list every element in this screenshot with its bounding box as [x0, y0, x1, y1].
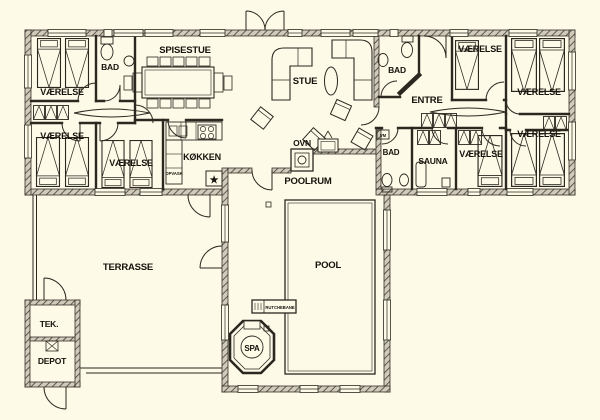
- ovn-stove-icon: [291, 149, 313, 171]
- coffee-table: [325, 67, 338, 95]
- depot-door: [44, 387, 66, 409]
- bed-icon: [37, 138, 60, 187]
- room-label-terrasse: TERRASSE: [103, 262, 153, 273]
- room-label-vaerelse-tr2: VÆRELSE: [517, 87, 561, 97]
- room-label-vaerelse-ll1: VÆRELSE: [40, 131, 84, 141]
- room-label-koekken: KØKKEN: [183, 152, 221, 162]
- armchair: [251, 107, 273, 129]
- terrace-boundary: [33, 195, 222, 373]
- dining-table: [124, 57, 232, 108]
- room-label-ovn: OVN: [293, 138, 311, 148]
- room-label-vaerelse-lr1: VÆRELSE: [459, 149, 503, 159]
- toilet-icon: [402, 36, 414, 58]
- room-label-vaerelse-lr2: VÆRELSE: [517, 129, 561, 139]
- room-label-bad-right: BAD: [388, 65, 406, 75]
- floor-plan-canvas: VÆRELSE BAD SPISESTUE STUE BAD ENTRE VÆR…: [0, 0, 600, 420]
- room-label-sauna: SAUNA: [418, 156, 447, 166]
- hallway-lens: [430, 108, 506, 116]
- room-label-vaerelse-tr1: VÆRELSE: [458, 44, 502, 54]
- bed-icon: [540, 134, 565, 187]
- star-marker-icon: ★: [210, 175, 219, 186]
- wardrobe-icon: [459, 131, 470, 145]
- room-label-bad-lower: BAD: [383, 148, 400, 157]
- wardrobe-icon: [58, 106, 69, 120]
- bed-icon: [38, 39, 61, 88]
- drain-marker: [266, 202, 271, 207]
- wardrobe-icon: [471, 131, 482, 145]
- room-label-entre: ENTRE: [411, 95, 442, 106]
- sofa: [332, 40, 372, 100]
- bed-icon: [66, 138, 89, 187]
- room-label-vaerelse-tl: VÆRELSE: [40, 87, 84, 97]
- labels: VÆRELSE BAD SPISESTUE STUE BAD ENTRE VÆR…: [38, 44, 561, 366]
- double-entry-door-right: [265, 11, 284, 30]
- floor-plan-drawing: VÆRELSE BAD SPISESTUE STUE BAD ENTRE VÆR…: [0, 0, 600, 420]
- wardrobe-icon: [34, 106, 45, 120]
- room-label-pool: POOL: [315, 260, 342, 271]
- wardrobe-icon: [434, 114, 445, 128]
- annotation-opvask: OPVASK: [165, 171, 182, 176]
- room-label-spisestue: SPISESTUE: [159, 45, 211, 56]
- bed-icon: [540, 39, 565, 92]
- wardrobe-icon: [422, 114, 433, 128]
- toilet-icon: [101, 37, 113, 60]
- room-label-stue: STUE: [293, 76, 318, 87]
- wardrobe-icon: [46, 106, 57, 120]
- heater-unit: [46, 341, 58, 351]
- armchair: [351, 128, 373, 150]
- annotation-rutchebane: RUTCHEBANE: [265, 305, 295, 310]
- window-poolwing: [222, 205, 391, 393]
- sauna-heater: [442, 178, 450, 187]
- hallway-lens: [74, 109, 150, 117]
- tek-door: [44, 278, 66, 300]
- wardrobe-icon: [418, 131, 429, 145]
- annotation-vm: VM: [380, 133, 387, 138]
- sofa: [272, 48, 312, 100]
- room-label-spa: SPA: [244, 344, 260, 353]
- room-label-vaerelse-ll2: VÆRELSE: [109, 158, 153, 168]
- sink-icon: [400, 174, 409, 186]
- room-label-poolrum: POOLRUM: [284, 176, 331, 187]
- double-entry-door-left: [246, 11, 265, 30]
- entre-door: [424, 36, 446, 58]
- pool-basin: [285, 200, 375, 374]
- room-label-depot: DEPOT: [38, 356, 67, 366]
- room-label-tek: TEK.: [40, 319, 59, 329]
- angled-wall: [400, 75, 419, 93]
- bed-icon: [66, 39, 89, 88]
- bed-icon: [512, 39, 537, 92]
- sink-icon: [378, 54, 388, 67]
- window-row-top: [48, 30, 537, 37]
- room-label-bad-left: BAD: [101, 62, 119, 72]
- sink-icon: [124, 56, 134, 66]
- armchair: [330, 99, 351, 120]
